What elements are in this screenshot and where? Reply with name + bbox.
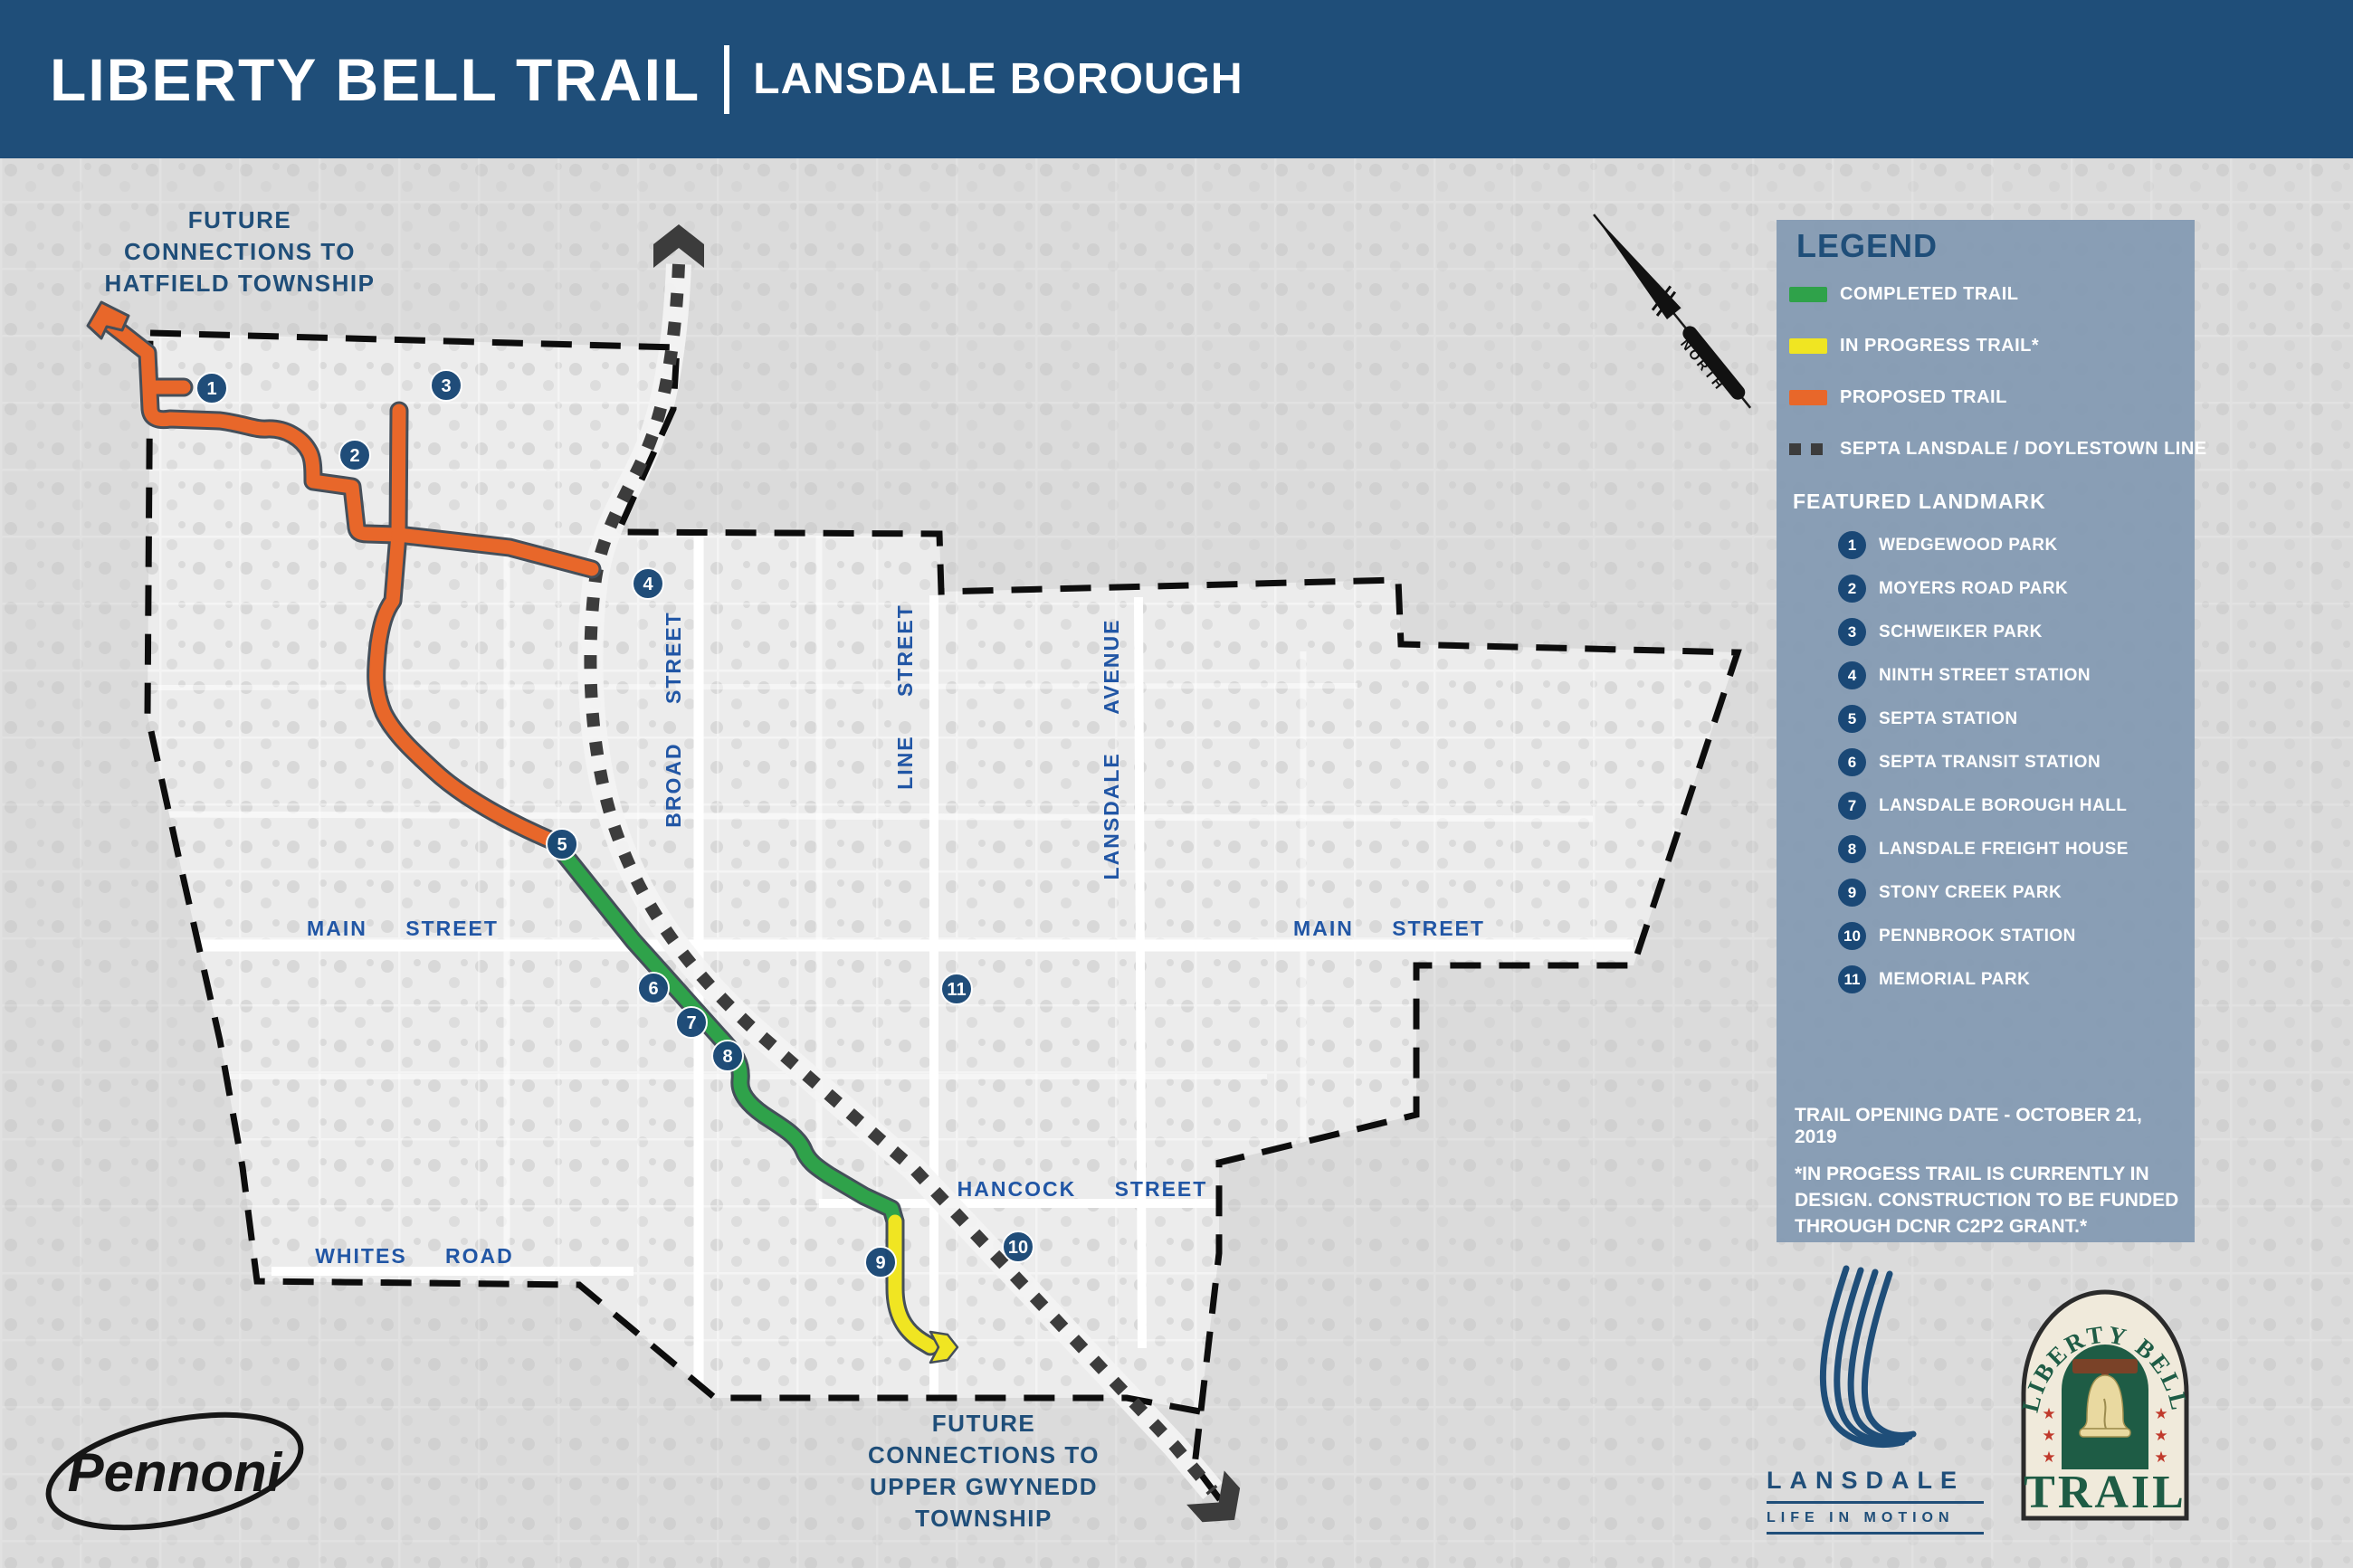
- star-icon: ★: [2042, 1427, 2055, 1444]
- landmark-number: 11: [1838, 965, 1866, 993]
- landmark-row: 7LANSDALE BOROUGH HALL: [1838, 792, 2129, 820]
- street-label-main-east: MAIN STREET: [1293, 917, 1485, 940]
- svg-text:4: 4: [643, 575, 653, 594]
- legend-item-completed: COMPLETED TRAIL: [1789, 283, 2207, 305]
- note-line: HATFIELD TOWNSHIP: [77, 268, 403, 299]
- map-marker-10: 10: [1003, 1231, 1034, 1262]
- legend-panel: LEGEND COMPLETED TRAIL IN PROGRESS TRAIL…: [1777, 220, 2195, 1242]
- landmark-row: 10PENNBROOK STATION: [1838, 922, 2129, 950]
- proposed-trail-swatch: [1789, 390, 1827, 405]
- landmark-row: 3SCHWEIKER PARK: [1838, 618, 2129, 646]
- street-label-line: LINE STREET: [893, 603, 917, 790]
- septa-dash-square: [1789, 443, 1801, 455]
- lansdale-wordmark: LANSDALE: [1767, 1467, 1984, 1504]
- landmark-row: 1WEDGEWOOD PARK: [1838, 531, 2129, 559]
- landmark-number: 3: [1838, 618, 1866, 646]
- page-subtitle: LANSDALE BOROUGH: [753, 54, 1243, 104]
- note-upper-gwynedd-connection: FUTURE CONNECTIONS TO UPPER GWYNEDD TOWN…: [798, 1408, 1169, 1535]
- in-progress-trail-swatch: [1789, 338, 1827, 354]
- septa-line-swatch: [1789, 443, 1827, 455]
- landmark-number: 6: [1838, 748, 1866, 776]
- map-marker-11: 11: [941, 974, 972, 1004]
- street-label-whites: WHITES ROAD: [315, 1244, 514, 1268]
- landmark-number: 1: [1838, 531, 1866, 559]
- landmark-number: 5: [1838, 705, 1866, 733]
- pennoni-wordmark: Pennoni: [68, 1442, 283, 1503]
- landmark-number: 9: [1838, 879, 1866, 907]
- lansdale-swoosh-icon: [1767, 1265, 1984, 1462]
- street-label-lansdale-ave: LANSDALE AVENUE: [1100, 619, 1123, 880]
- landmark-row: 4NINTH STREET STATION: [1838, 661, 2129, 689]
- street-label-hancock: HANCOCK STREET: [957, 1177, 1208, 1201]
- landmark-number: 4: [1838, 661, 1866, 689]
- poster: LIBERTY BELL TRAIL LANSDALE BOROUGH: [0, 0, 2353, 1568]
- note-line: CONNECTIONS TO: [77, 236, 403, 268]
- svg-text:11: 11: [947, 980, 966, 1000]
- in-progress-footnote: *IN PROGESS TRAIL IS CURRENTLY IN DESIGN…: [1795, 1161, 2179, 1240]
- svg-text:10: 10: [1008, 1238, 1028, 1258]
- svg-text:3: 3: [441, 376, 451, 396]
- note-line: CONNECTIONS TO: [798, 1440, 1169, 1471]
- street-label-broad: BROAD STREET: [662, 611, 685, 827]
- svg-text:2: 2: [349, 446, 359, 466]
- featured-landmark-title: FEATURED LANDMARK: [1793, 489, 2046, 514]
- landmark-row: 11MEMORIAL PARK: [1838, 965, 2129, 993]
- map-marker-6: 6: [638, 973, 669, 1003]
- landmark-row: 5SEPTA STATION: [1838, 705, 2129, 733]
- title-divider: [724, 45, 729, 114]
- map-marker-8: 8: [712, 1041, 743, 1071]
- legend-item-proposed: PROPOSED TRAIL: [1789, 386, 2207, 408]
- page-title: LIBERTY BELL TRAIL: [50, 45, 700, 114]
- landmark-row: 9STONY CREEK PARK: [1838, 879, 2129, 907]
- map-marker-9: 9: [865, 1247, 896, 1278]
- svg-text:7: 7: [686, 1013, 696, 1033]
- map-marker-1: 1: [196, 373, 227, 404]
- svg-text:9: 9: [875, 1253, 885, 1273]
- liberty-bell-trail-logo: ★ ★ ★ ★ ★ ★ LIBERTY BELL TRAIL: [2016, 1283, 2194, 1530]
- legend-title: LEGEND: [1796, 227, 1938, 265]
- landmark-row: 6SEPTA TRANSIT STATION: [1838, 748, 2129, 776]
- svg-text:1: 1: [206, 379, 216, 399]
- map-marker-3: 3: [431, 370, 462, 401]
- note-line: UPPER GWYNEDD: [798, 1471, 1169, 1503]
- lansdale-tagline: LIFE IN MOTION: [1767, 1510, 1984, 1535]
- note-line: FUTURE: [798, 1408, 1169, 1440]
- map-marker-4: 4: [633, 568, 663, 599]
- street-label-main-west: MAIN STREET: [307, 917, 499, 940]
- landmark-row: 8LANSDALE FREIGHT HOUSE: [1838, 835, 2129, 863]
- star-icon: ★: [2154, 1427, 2167, 1444]
- map-marker-2: 2: [339, 440, 370, 470]
- header-bar: LIBERTY BELL TRAIL LANSDALE BOROUGH: [0, 0, 2353, 158]
- landmark-number: 10: [1838, 922, 1866, 950]
- svg-text:6: 6: [648, 979, 658, 999]
- legend-item-in-progress: IN PROGRESS TRAIL*: [1789, 335, 2207, 356]
- landmark-number: 2: [1838, 575, 1866, 603]
- badge-trail-wordmark: TRAIL: [2024, 1467, 2186, 1518]
- completed-trail-swatch: [1789, 287, 1827, 302]
- map-marker-5: 5: [547, 829, 577, 860]
- note-line: FUTURE: [77, 204, 403, 236]
- map-marker-7: 7: [676, 1007, 707, 1038]
- landmark-row: 2MOYERS ROAD PARK: [1838, 575, 2129, 603]
- landmark-number: 7: [1838, 792, 1866, 820]
- legend-items: COMPLETED TRAIL IN PROGRESS TRAIL* PROPO…: [1789, 283, 2207, 489]
- star-icon: ★: [2042, 1449, 2055, 1466]
- landmark-list: 1WEDGEWOOD PARK 2MOYERS ROAD PARK 3SCHWE…: [1838, 531, 2129, 1009]
- svg-text:8: 8: [722, 1047, 732, 1067]
- trail-opening-date: TRAIL OPENING DATE - OCTOBER 21, 2019: [1795, 1105, 2179, 1148]
- note-hatfield-connection: FUTURE CONNECTIONS TO HATFIELD TOWNSHIP: [77, 204, 403, 299]
- note-line: TOWNSHIP: [798, 1503, 1169, 1535]
- legend-item-septa: SEPTA LANSDALE / DOYLESTOWN LINE: [1789, 438, 2207, 460]
- landmark-number: 8: [1838, 835, 1866, 863]
- pennoni-logo: Pennoni: [34, 1408, 315, 1541]
- star-icon: ★: [2154, 1449, 2167, 1466]
- septa-dash-square: [1811, 443, 1823, 455]
- lansdale-logo: LANSDALE LIFE IN MOTION: [1767, 1265, 1984, 1535]
- svg-text:5: 5: [557, 835, 567, 855]
